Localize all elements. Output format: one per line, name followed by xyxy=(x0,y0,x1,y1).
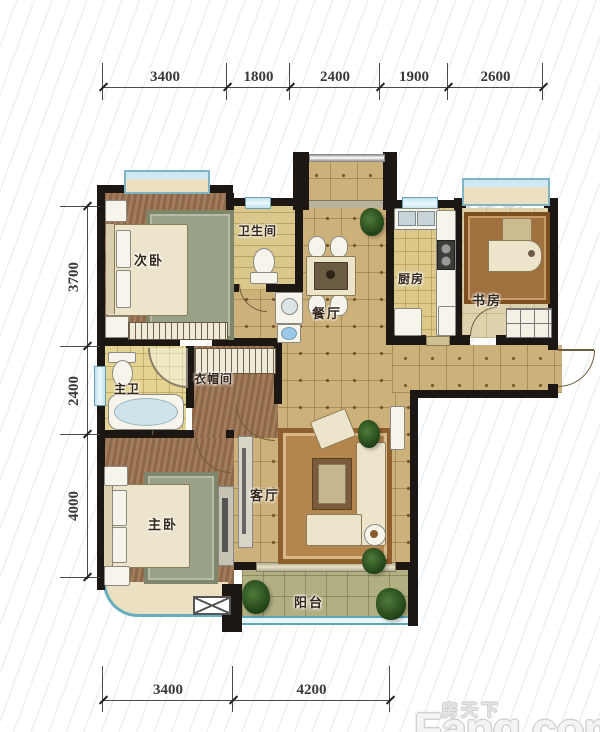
dim-top-3: 2400 xyxy=(290,69,380,85)
table-centerpiece xyxy=(326,270,335,279)
bathtub-basin xyxy=(114,398,178,426)
nightstand xyxy=(105,200,127,222)
room-label-cloakroom: 衣帽间 xyxy=(194,370,233,387)
room-label-kitchen: 厨房 xyxy=(398,270,424,287)
room-label-balcony: 阳台 xyxy=(294,592,324,611)
washing-machine-door xyxy=(281,298,298,315)
dimension-extension xyxy=(60,577,100,578)
plant-icon xyxy=(358,420,380,448)
dim-left-3: 4000 xyxy=(66,476,82,536)
tv-icon xyxy=(222,498,228,552)
wall xyxy=(266,284,303,292)
dining-chair xyxy=(330,236,348,258)
wall xyxy=(226,430,234,438)
room-label-second-bedroom: 次卧 xyxy=(134,250,164,269)
wall xyxy=(408,570,418,626)
desk-chair xyxy=(528,250,535,257)
bay-window-study xyxy=(462,178,550,206)
sink-basin xyxy=(398,211,416,226)
watermark-site-en: Fang.com xyxy=(414,702,600,732)
toilet-tank xyxy=(250,272,278,284)
window-bathroom xyxy=(245,197,271,209)
dimension-extension xyxy=(60,206,100,207)
dim-top-5: 2600 xyxy=(448,69,543,85)
room-label-master-bedroom: 主卧 xyxy=(148,514,178,533)
entry-door xyxy=(309,154,385,162)
room-label-bathroom: 卫生间 xyxy=(238,222,277,239)
bay-window-second-bedroom xyxy=(124,170,210,194)
wall xyxy=(386,208,394,335)
plant-icon xyxy=(360,208,384,236)
dimension-extension xyxy=(60,346,100,347)
dim-top-1: 3400 xyxy=(103,69,227,85)
floor-plan: 诸葛找房 诸葛找房 xyxy=(0,0,600,732)
column-pier xyxy=(193,596,231,615)
bookshelf xyxy=(506,308,552,338)
room-label-master-bath: 主卫 xyxy=(114,380,140,397)
wall xyxy=(97,185,127,193)
dim-left-1: 3700 xyxy=(66,247,82,307)
bed-headboard xyxy=(106,224,115,314)
shoe-cabinet xyxy=(390,406,405,450)
wall xyxy=(386,335,426,345)
wall xyxy=(448,335,470,345)
pillow xyxy=(116,270,131,308)
dim-top-2: 1800 xyxy=(227,69,290,85)
kitchen-door-threshold xyxy=(426,336,450,346)
dining-chair xyxy=(308,236,326,258)
wall xyxy=(293,152,309,210)
room-label-study: 书房 xyxy=(472,290,502,309)
nightstand xyxy=(104,466,128,486)
stove-icon xyxy=(437,240,455,270)
dim-left-2: 2400 xyxy=(66,361,82,421)
basin-bowl xyxy=(281,327,297,340)
wall xyxy=(410,390,558,398)
wall xyxy=(392,200,402,208)
entry-threshold xyxy=(303,200,389,208)
wall xyxy=(233,198,245,206)
tv-icon xyxy=(242,448,246,534)
dim-bottom-1: 3400 xyxy=(103,682,233,698)
dimension-extension xyxy=(60,434,100,435)
pillow xyxy=(116,230,131,268)
nightstand xyxy=(104,566,130,586)
fridge xyxy=(394,308,422,336)
dimension-line xyxy=(87,207,88,579)
wall xyxy=(548,338,558,350)
wall xyxy=(410,398,418,570)
wall xyxy=(234,562,256,570)
wall xyxy=(394,562,418,570)
coffee-table-glass xyxy=(318,464,346,504)
dim-top-4: 1900 xyxy=(380,69,448,85)
dimension-line xyxy=(103,87,544,88)
computer-monitor xyxy=(502,218,532,242)
dimension-line xyxy=(103,700,391,701)
plant-icon xyxy=(376,588,406,620)
wall xyxy=(295,206,303,290)
dim-bottom-2: 4200 xyxy=(233,682,390,698)
plant-icon xyxy=(362,548,386,574)
wardrobe xyxy=(128,322,228,340)
plant-icon xyxy=(242,580,270,614)
sink-basin xyxy=(417,211,435,226)
sofa-chaise xyxy=(306,514,362,546)
pillow xyxy=(112,527,127,563)
window-master-bath xyxy=(94,366,106,406)
room-label-dining: 餐厅 xyxy=(312,303,342,322)
kitchen-cabinet xyxy=(438,306,456,336)
room-label-living: 客厅 xyxy=(250,485,280,504)
floor-corridor xyxy=(392,345,562,393)
nightstand xyxy=(105,316,129,338)
pillow xyxy=(112,490,127,526)
lamp-icon xyxy=(370,530,378,538)
wall xyxy=(226,338,282,346)
